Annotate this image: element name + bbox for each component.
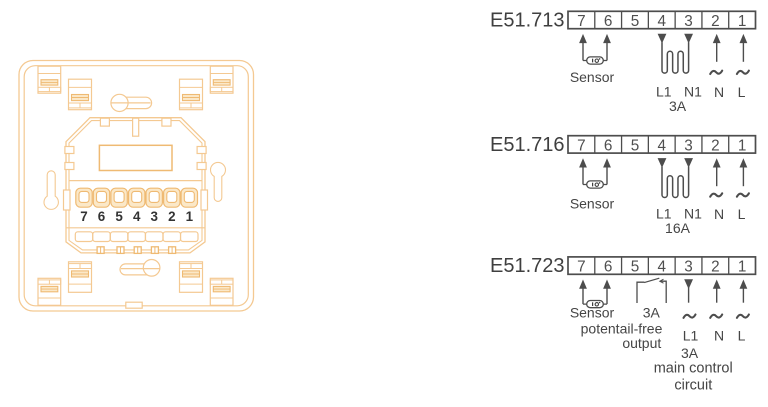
svg-text:16A: 16A xyxy=(665,220,691,236)
svg-text:1: 1 xyxy=(738,13,747,30)
svg-text:7: 7 xyxy=(577,138,586,155)
svg-text:L: L xyxy=(738,84,746,100)
svg-text:N: N xyxy=(714,327,724,343)
svg-text:3: 3 xyxy=(684,13,693,30)
svg-text:3: 3 xyxy=(684,138,693,155)
svg-text:1: 1 xyxy=(738,259,747,276)
svg-text:3A: 3A xyxy=(669,98,687,114)
svg-text:4: 4 xyxy=(657,13,666,30)
svg-text:L1: L1 xyxy=(656,206,672,222)
svg-text:3A: 3A xyxy=(681,345,699,361)
svg-text:5: 5 xyxy=(631,138,640,155)
svg-text:2: 2 xyxy=(711,13,720,30)
svg-text:1: 1 xyxy=(186,209,194,224)
svg-text:E51.713: E51.713 xyxy=(490,10,565,32)
svg-text:output: output xyxy=(622,335,661,351)
svg-text:4: 4 xyxy=(657,138,666,155)
svg-text:7: 7 xyxy=(80,209,87,224)
svg-text:7: 7 xyxy=(577,13,586,30)
svg-text:1: 1 xyxy=(738,138,747,155)
svg-text:N: N xyxy=(714,84,724,100)
svg-text:2: 2 xyxy=(711,259,720,276)
svg-text:circuit: circuit xyxy=(674,377,712,393)
svg-text:E51.716: E51.716 xyxy=(490,134,565,156)
svg-text:E51.723: E51.723 xyxy=(490,255,565,277)
svg-text:5: 5 xyxy=(631,259,640,276)
svg-text:N1: N1 xyxy=(684,84,702,100)
svg-text:4: 4 xyxy=(657,259,666,276)
svg-text:Sensor: Sensor xyxy=(570,196,615,212)
svg-text:7: 7 xyxy=(577,259,586,276)
svg-text:6: 6 xyxy=(604,138,613,155)
svg-text:Sensor: Sensor xyxy=(570,69,615,85)
svg-text:L: L xyxy=(738,327,746,343)
svg-text:5: 5 xyxy=(631,13,640,30)
svg-text:potentail-free: potentail-free xyxy=(581,320,663,336)
svg-text:N1: N1 xyxy=(684,206,702,222)
svg-text:2: 2 xyxy=(711,138,720,155)
svg-text:Sensor: Sensor xyxy=(570,305,615,321)
svg-text:L1: L1 xyxy=(683,327,699,343)
svg-text:L: L xyxy=(738,206,746,222)
svg-text:3A: 3A xyxy=(643,305,661,321)
svg-text:2: 2 xyxy=(168,209,175,224)
svg-text:N: N xyxy=(714,206,724,222)
svg-text:main control: main control xyxy=(654,360,733,376)
svg-text:3: 3 xyxy=(150,209,157,224)
svg-text:4: 4 xyxy=(133,209,141,224)
svg-text:5: 5 xyxy=(115,209,123,224)
svg-text:3: 3 xyxy=(684,259,693,276)
svg-text:6: 6 xyxy=(98,209,105,224)
svg-text:6: 6 xyxy=(604,13,613,30)
svg-text:6: 6 xyxy=(604,259,613,276)
